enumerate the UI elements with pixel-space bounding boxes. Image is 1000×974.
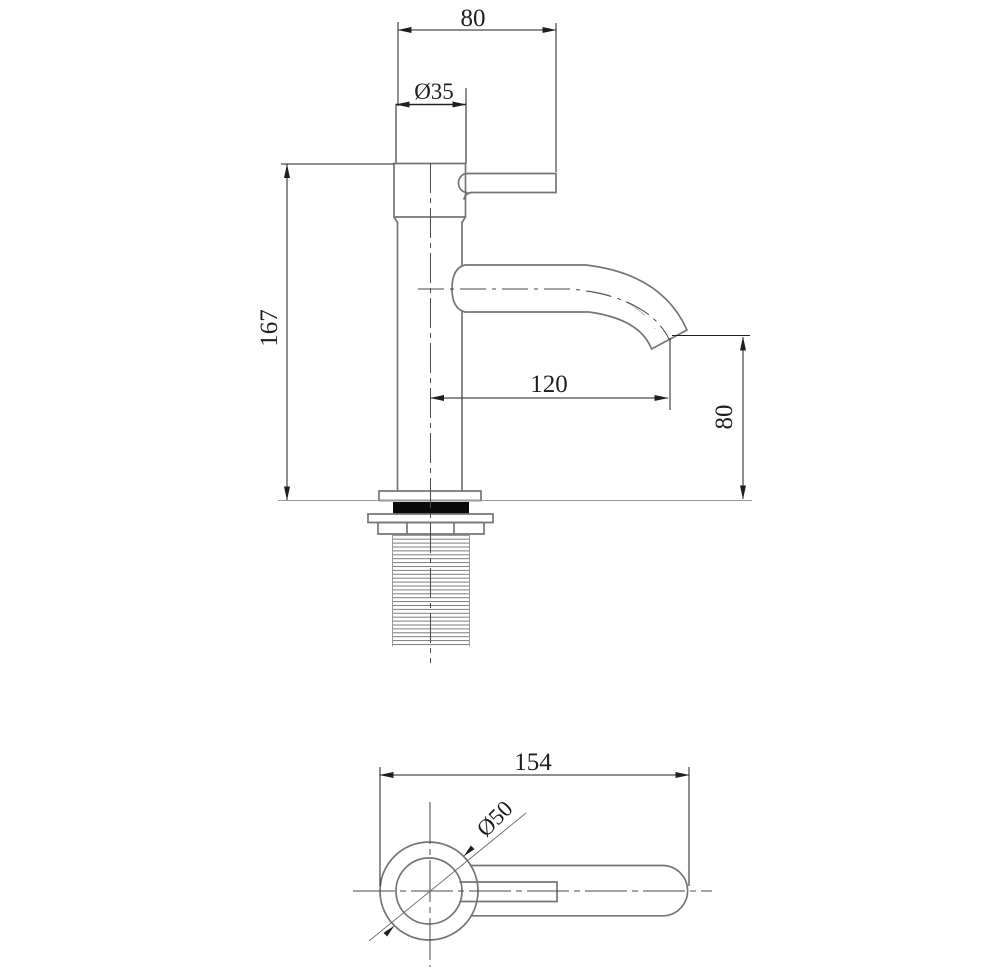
plan-lever-rod	[460, 882, 557, 902]
dim-spout-reach: 120	[431, 338, 671, 410]
dim-arrow-upper	[464, 846, 475, 857]
faucet-column	[398, 223, 463, 492]
spout-centerline	[418, 289, 669, 339]
technical-drawing-canvas: 80 Ø35 167 120 80	[0, 0, 1000, 974]
dim-arrow-lower	[384, 926, 395, 937]
elevation-view: 80 Ø35 167 120 80	[256, 5, 752, 663]
plan-centerlines	[353, 802, 712, 967]
dim-total-height-label: 167	[256, 309, 283, 347]
handle-lever	[459, 174, 557, 200]
dim-spout-height-label: 80	[711, 405, 738, 430]
spout	[452, 265, 687, 349]
dim-handle-length-label: 80	[461, 5, 486, 32]
spout-highlight	[587, 291, 655, 329]
faucet-valve-body	[394, 164, 466, 218]
dim-total-height: 167	[256, 164, 394, 500]
dim-cap-diameter-label: Ø35	[414, 79, 454, 104]
faucet-drawing-svg: 80 Ø35 167 120 80	[0, 0, 1000, 974]
dim-cap-diameter: Ø35	[396, 79, 466, 105]
faucet-outline	[278, 105, 752, 647]
plan-view: 154 Ø50	[353, 749, 712, 967]
dim-spout-reach-label: 120	[530, 371, 568, 398]
dim-base-diameter-label: Ø50	[472, 796, 518, 842]
faucet-cap	[394, 105, 466, 164]
dim-overall-length-label: 154	[514, 749, 552, 776]
dim-spout-height: 80	[672, 336, 750, 500]
